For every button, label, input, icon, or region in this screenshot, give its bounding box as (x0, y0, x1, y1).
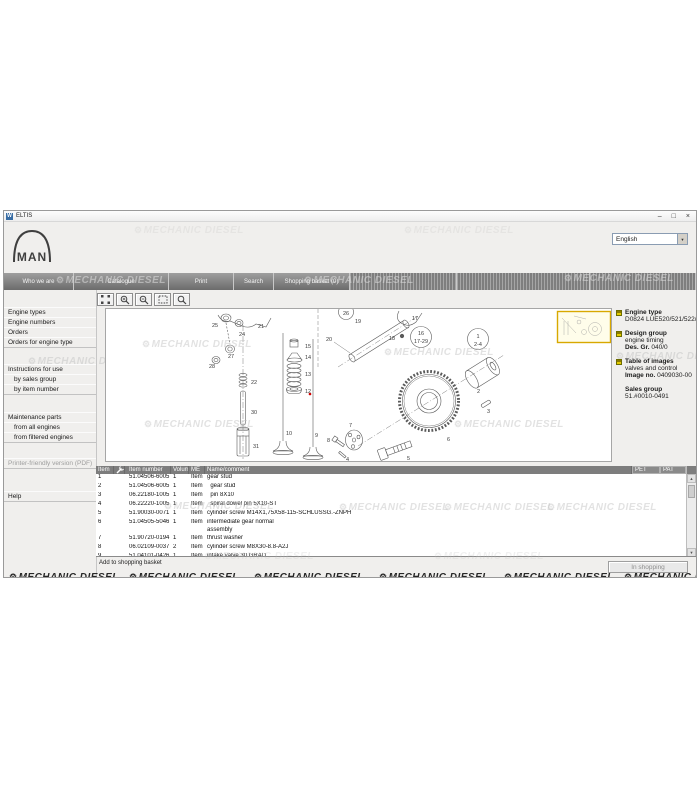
cell-name: thrust washer (205, 535, 632, 543)
cell-item: 8 (96, 544, 114, 552)
nav-spacer (350, 273, 457, 290)
language-select[interactable]: English ▼ (612, 233, 688, 245)
diagram-callout-7[interactable]: 7 (349, 423, 352, 429)
watermark: ⚙MECHANIC DIESEL (9, 572, 119, 578)
col-header-name[interactable]: Name/comment (205, 466, 632, 474)
parts-diagram-panel[interactable]: 2524212728223031151413121091920181726161… (105, 308, 612, 462)
watermark: ⚙MECHANIC DIESEL (504, 572, 614, 578)
table-row[interactable]: 1 51.04506-6005 1 Item gear stud (96, 474, 686, 483)
man-logo: MAN (10, 227, 54, 267)
cell-me: Item (189, 553, 205, 557)
table-of-images-icon[interactable] (616, 359, 622, 365)
scrollbar-thumb[interactable] (688, 485, 695, 498)
engine-type-block: Engine type D0824 LUE520/521/522/52 (616, 309, 696, 323)
cell-item: 6 (96, 519, 114, 527)
table-row[interactable]: 5 51.90030-0071 1 Item cylinder screw M1… (96, 510, 686, 519)
tab-who-we-are[interactable]: Who we are (4, 273, 74, 290)
cell-item-number: 06.22220-1005 (125, 501, 171, 509)
diagram-callout-20[interactable]: 20 (326, 337, 332, 343)
diagram-callout-25[interactable]: 25 (212, 323, 218, 329)
close-button[interactable]: × (686, 212, 690, 221)
cell-me: Item (189, 510, 205, 518)
cell-name: intake valve 30 GRAD (205, 553, 632, 557)
engine-type-icon[interactable] (616, 310, 622, 316)
design-group-line1: engine timing (616, 337, 696, 344)
cell-me: Item (189, 535, 205, 543)
table-body: 1 51.04506-6005 1 Item gear stud 2 51.04… (96, 474, 686, 557)
diagram-callout-24[interactable]: 24 (239, 332, 245, 338)
table-row[interactable]: 4 06.22220-1005 1 Item spiral dowel pin … (96, 501, 686, 510)
tab-catalogue[interactable]: Catalogue (74, 273, 169, 290)
cell-item-number: 06.02109-0037 (125, 544, 171, 552)
engine-type-value: D0824 LUE520/521/522/52 (616, 316, 696, 323)
scroll-down-button[interactable]: ▼ (687, 548, 696, 557)
nav-spacer (590, 273, 696, 290)
table-of-images-block: Table of images valves and control Image… (616, 358, 696, 379)
cell-me: Item (189, 474, 205, 482)
col-header-item[interactable]: Item (96, 466, 114, 474)
design-group-block: Design group engine timing Des. Gr. 040/… (616, 330, 696, 351)
cell-volume: 1 (171, 510, 189, 518)
diagram-callout-13[interactable]: 13 (305, 372, 311, 378)
diagram-callout-2-4[interactable]: 2-4 (474, 342, 482, 348)
parts-diagram[interactable]: 2524212728223031151413121091920181726161… (106, 309, 611, 461)
parts-table: Item Item number Volume ME Name/comment … (96, 466, 696, 557)
fit-view-button[interactable] (97, 293, 114, 306)
sidebar-item-from-filtered-engines[interactable]: from filtered engines (4, 432, 96, 443)
title-bar: W ELTIS – □ × (4, 211, 696, 222)
zoom-area-button[interactable] (154, 293, 171, 306)
gear-icon: ⚙ (129, 572, 138, 578)
diagram-callout-16[interactable]: 16 (418, 331, 424, 337)
design-group-icon[interactable] (616, 331, 622, 337)
magnifier-button[interactable] (173, 293, 190, 306)
eltis-app-window: ⚙MECHANIC DIESEL ⚙MECHANIC DIESEL W ELTI… (3, 210, 697, 578)
app-header: MAN English ▼ (4, 223, 696, 273)
table-row[interactable]: 9 51.04101-0426 1 Item intake valve 30 G… (96, 553, 686, 557)
cell-item: 7 (96, 535, 114, 543)
diagram-callout-6[interactable]: 6 (447, 437, 450, 443)
zoom-out-button[interactable] (135, 293, 152, 306)
sidebar-item-by-item-number[interactable]: by item number (4, 384, 96, 395)
col-header-pat[interactable]: PAT (660, 466, 686, 474)
cell-name: intermediate gear normal assembly (205, 519, 632, 535)
cell-volume: 1 (171, 483, 189, 491)
diagram-toolbar (97, 293, 190, 306)
cell-item-number: 51.04506-6005 (125, 474, 171, 482)
diagram-callout-1[interactable]: 1 (476, 334, 479, 340)
window-title: ELTIS (16, 213, 32, 219)
cell-name: gear stud (205, 483, 632, 491)
nav-bar: Who we are Catalogue Print Search Shoppi… (4, 273, 696, 290)
diagram-callout-27[interactable]: 27 (228, 354, 234, 360)
gear-icon: ⚙ (254, 572, 263, 578)
diagram-callout-8[interactable]: 8 (327, 438, 330, 444)
cell-item: 4 (96, 501, 114, 509)
sidebar-item-help[interactable]: Help (4, 491, 96, 502)
cell-volume: 1 (171, 535, 189, 543)
diagram-callout-12[interactable]: 12 (305, 389, 311, 395)
tab-print[interactable]: Print (169, 273, 234, 290)
engine-type-label: Engine type (625, 309, 662, 316)
cell-name: cylinder screw M8X30-8.8-A2J (205, 544, 632, 552)
col-header-pet[interactable]: PET (632, 466, 660, 474)
cell-item-number: 51.90030-0071 (125, 510, 171, 518)
scrollbar-cap (687, 466, 696, 474)
cell-item: 2 (96, 483, 114, 491)
cell-volume: 1 (171, 501, 189, 509)
diagram-callout-3[interactable]: 3 (487, 409, 490, 415)
table-row[interactable]: 7 51.90720-0194 1 Item thrust washer (96, 535, 686, 544)
cell-name: cylinder screw M14X1,75X58-115-SCHLUSSG.… (205, 510, 632, 518)
chevron-down-icon[interactable]: ▼ (677, 234, 687, 244)
diagram-callout-10[interactable]: 10 (286, 431, 292, 437)
cell-me: Item (189, 544, 205, 552)
table-of-images-line1: valves and control (616, 365, 696, 372)
cell-item-number: 51.04506-6005 (125, 483, 171, 491)
cell-me: Item (189, 492, 205, 500)
diagram-callout-15[interactable]: 15 (305, 344, 311, 350)
cell-item-number: 51.04505-5046 (125, 519, 171, 527)
sidebar-item-orders-for-engine-type[interactable]: Orders for engine type (4, 337, 96, 348)
table-header-row: Item Item number Volume ME Name/comment … (96, 466, 696, 474)
diagram-callout-22[interactable]: 22 (251, 380, 257, 386)
cell-volume: 1 (171, 519, 189, 527)
col-header-me[interactable]: ME (189, 466, 205, 474)
col-header-wrench[interactable] (114, 466, 125, 474)
table-row[interactable]: 6 51.04505-5046 1 Item intermediate gear… (96, 519, 686, 535)
zoom-out-icon (139, 295, 149, 305)
watermark: ⚙MECHANIC DIESEL (254, 572, 364, 578)
diagram-callout-31[interactable]: 31 (253, 444, 259, 450)
tab-search[interactable]: Search (234, 273, 274, 290)
fit-view-icon (101, 295, 110, 304)
col-header-volume[interactable]: Volume (171, 466, 189, 474)
scroll-up-button[interactable]: ▲ (687, 474, 696, 483)
diagram-callout-14[interactable]: 14 (305, 355, 311, 361)
watermark: ⚙MECHANIC DIESEL (379, 572, 489, 578)
zoom-in-button[interactable] (116, 293, 133, 306)
in-shopping-button[interactable]: In shopping (608, 561, 688, 573)
tab-shopping-basket[interactable]: Shopping basket (0) (274, 273, 350, 290)
nav-spacer (457, 273, 590, 290)
cell-item-number: 06.22180-1005 (125, 492, 171, 500)
cell-name: gear stud (205, 474, 632, 482)
cell-name: pin 8X10 (205, 492, 632, 500)
cell-item: 3 (96, 492, 114, 500)
table-row[interactable]: 2 51.04506-6005 1 Item gear stud (96, 483, 686, 492)
diagram-callout-28[interactable]: 28 (209, 364, 215, 370)
design-group-label: Design group (625, 330, 667, 337)
language-value: English (613, 236, 677, 243)
maximize-button[interactable]: □ (672, 212, 676, 221)
table-of-images-label: Table of images (625, 358, 674, 365)
table-of-images-line2: Image no. 0409030-00 (616, 372, 696, 379)
minimize-button[interactable]: – (658, 212, 662, 221)
design-group-line2: Des. Gr. 040/0 (616, 344, 696, 351)
sidebar-item-printer-friendly-pdf[interactable]: Printer-friendly version (PDF) (4, 458, 96, 469)
diagram-callout-4[interactable]: 4 (346, 457, 349, 461)
diagram-callout-9[interactable]: 9 (315, 433, 318, 439)
gear-icon: ⚙ (379, 572, 388, 578)
cell-item-number: 51.90720-0194 (125, 535, 171, 543)
diagram-callout-18[interactable]: 18 (389, 336, 395, 342)
diagram-callout-30[interactable]: 30 (251, 410, 257, 416)
zoom-area-icon (158, 295, 168, 304)
diagram-callout-17[interactable]: 17 (412, 316, 418, 322)
diagram-overview-thumbnail[interactable] (558, 312, 611, 343)
gear-icon: ⚙ (9, 572, 18, 578)
cell-volume: 2 (171, 544, 189, 552)
svg-text:MAN: MAN (17, 250, 47, 264)
watermark: ⚙MECHANIC DIESEL (129, 572, 239, 578)
cell-item-number: 51.04101-0426 (125, 553, 171, 557)
cell-volume: 1 (171, 474, 189, 482)
diagram-callout-21[interactable]: 21 (258, 324, 264, 330)
diagram-callout-19[interactable]: 19 (355, 319, 361, 325)
diagram-callout-2[interactable]: 2 (477, 389, 480, 395)
diagram-callout-17-29[interactable]: 17-29 (414, 339, 428, 345)
cell-me: Item (189, 519, 205, 527)
add-to-basket-label: Add to shopping basket (99, 560, 162, 566)
cell-item: 5 (96, 510, 114, 518)
sales-group-block: Sales group 51.#0010-0491 (616, 386, 696, 400)
app-icon: W (6, 213, 13, 220)
col-header-item-number[interactable]: Item number (125, 466, 171, 474)
screenshot-canvas: ⚙MECHANIC DIESEL ⚙MECHANIC DIESEL W ELTI… (0, 0, 700, 800)
info-panel: Engine type D0824 LUE520/521/522/52 Desi… (616, 309, 696, 407)
zoom-in-icon (120, 295, 130, 305)
cell-volume: 1 (171, 492, 189, 500)
magnifier-icon (177, 295, 187, 305)
table-scrollbar[interactable]: ▲ ▼ (686, 466, 696, 557)
gear-icon: ⚙ (504, 572, 513, 578)
sales-group-label: Sales group (616, 386, 696, 393)
cell-me: Item (189, 483, 205, 491)
cell-item: 9 (96, 553, 114, 557)
wrench-icon (116, 466, 124, 474)
cell-me: Item (189, 501, 205, 509)
diagram-callout-5[interactable]: 5 (407, 456, 410, 461)
sales-group-value: 51.#0010-0491 (616, 393, 696, 400)
diagram-callout-26[interactable]: 26 (343, 311, 349, 317)
cell-name: spiral dowel pin 5X10-ST (205, 501, 632, 509)
cell-item: 1 (96, 474, 114, 482)
cell-volume: 1 (171, 553, 189, 557)
table-row[interactable]: 3 06.22180-1005 1 Item pin 8X10 (96, 492, 686, 501)
table-row[interactable]: 8 06.02109-0037 2 Item cylinder screw M8… (96, 544, 686, 553)
